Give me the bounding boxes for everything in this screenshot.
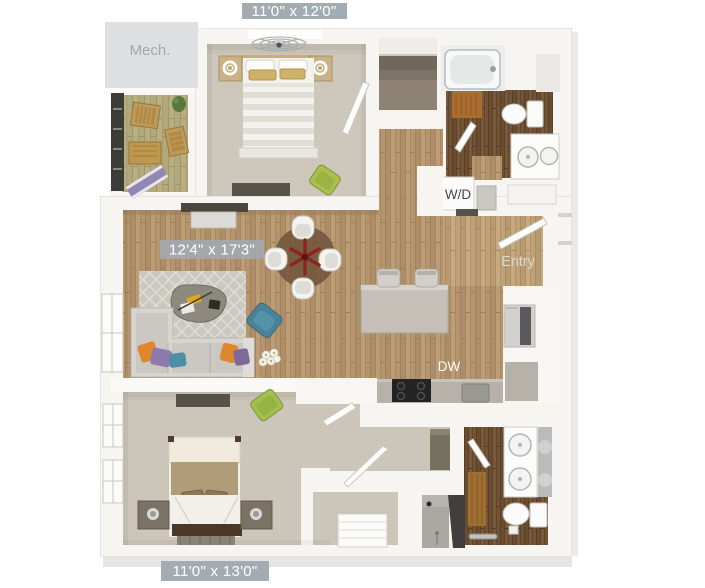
svg-text:12'4" x 17'3": 12'4" x 17'3" bbox=[169, 242, 255, 259]
svg-text:11'0" x 13'0": 11'0" x 13'0" bbox=[172, 563, 257, 580]
svg-text:W/D: W/D bbox=[445, 187, 471, 202]
svg-text:11'0" x 12'0": 11'0" x 12'0" bbox=[251, 3, 336, 20]
svg-text:Mech.: Mech. bbox=[130, 42, 171, 59]
svg-text:DW: DW bbox=[438, 359, 461, 374]
svg-text:Entry: Entry bbox=[501, 254, 536, 270]
